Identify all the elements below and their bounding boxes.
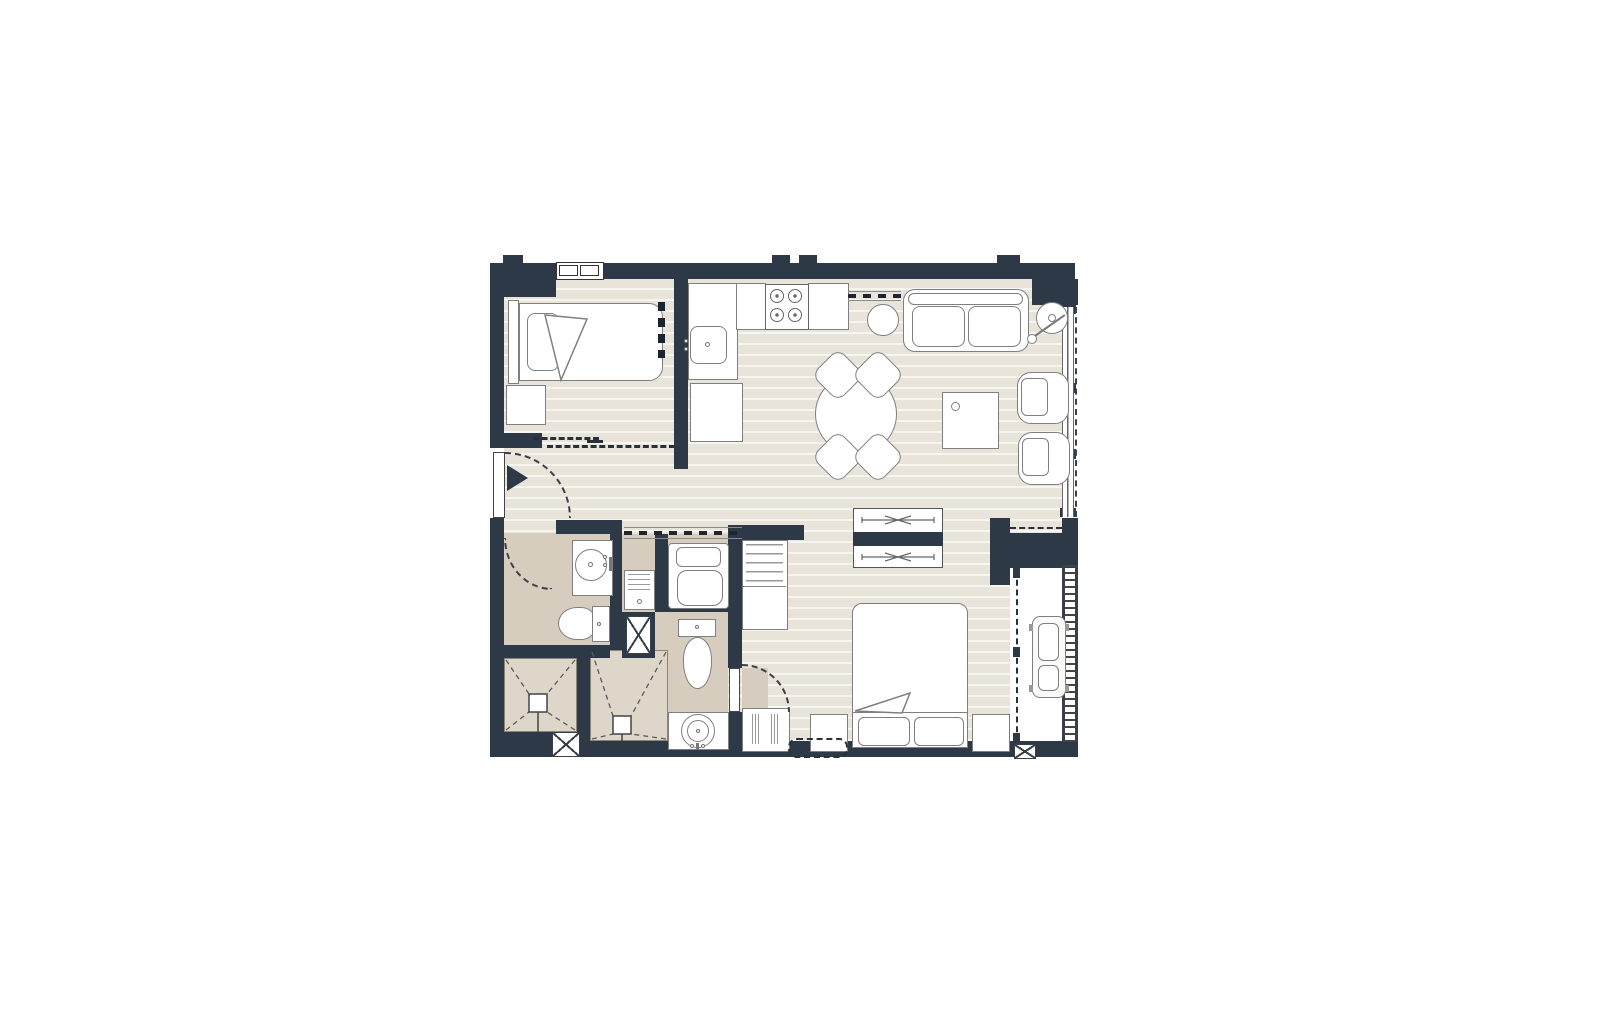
sofa-back (908, 293, 1023, 305)
wall-fridge-west (728, 525, 742, 668)
bed1-blanket-fold (852, 688, 914, 715)
basket-dot (637, 599, 642, 604)
wall-pilaster (799, 255, 817, 263)
ac-foot (1065, 685, 1069, 692)
laundry-sliding-track-dashed (624, 527, 742, 539)
shower-b (590, 650, 668, 741)
overhead-cabinet-dashed (848, 291, 901, 301)
balcony-hinge (1013, 733, 1020, 743)
bath1-faucet-icon (603, 555, 607, 559)
hanging-rail (859, 551, 937, 563)
wall-bath1-north (556, 520, 610, 534)
armchair-seat (1021, 378, 1048, 416)
wall-unit-dashed (788, 738, 848, 758)
wall-bath2-east-lower (728, 712, 742, 757)
coffee-table (942, 392, 999, 449)
sofa (903, 289, 1029, 352)
ac-foot (1065, 624, 1069, 631)
bath2-toilet-button (695, 625, 699, 629)
bath1-toilet-tank (592, 606, 610, 642)
sofa-cushion (968, 306, 1021, 347)
bath1-toilet-button (597, 622, 601, 626)
ac-condenser-unit (1032, 616, 1066, 698)
bath2-faucet-icon (690, 744, 694, 748)
wall-left-lower (490, 518, 504, 757)
wall-balcony-column (990, 518, 1010, 585)
ac-foot (1029, 685, 1033, 692)
balcony-boundary-dashed (1010, 527, 1062, 529)
balcony-edge-dashed (1075, 307, 1077, 517)
armchair (1018, 432, 1070, 485)
wall-balcony-top (1010, 533, 1062, 568)
bath1-toilet-bowl (558, 607, 596, 640)
bath2-drain-icon (696, 729, 700, 733)
duct-shaft-icon (552, 732, 580, 757)
burner-icon (788, 308, 802, 322)
sink-faucet-icon (684, 347, 688, 351)
dresser (742, 708, 790, 752)
dresser-line (771, 714, 772, 744)
wall-top-right-block (1032, 279, 1078, 305)
kitchen-counter (736, 283, 766, 330)
dresser-line (777, 714, 778, 744)
wall-pilaster (997, 255, 1020, 263)
duct-shaft-icon (626, 616, 651, 654)
coffee-table-handle (951, 402, 960, 411)
washer-drum (677, 570, 723, 606)
balcony-hinge (1013, 568, 1020, 578)
floor-plan (487, 255, 1078, 757)
wall-pilaster (772, 255, 790, 263)
wall-left-upper (490, 263, 504, 448)
wall-fridge-north (742, 525, 804, 540)
burner-icon (770, 308, 784, 322)
side-stool (867, 304, 899, 336)
entry-door-leaf (493, 452, 505, 518)
sink-drain-icon (705, 342, 710, 347)
ac-fan-section (1038, 623, 1059, 661)
refrigerator (742, 540, 788, 630)
sofa-cushion (912, 306, 965, 347)
dresser-line (752, 714, 753, 744)
window-sash (580, 265, 599, 276)
fridge-divider (743, 586, 786, 587)
floor-lamp-joint (1048, 314, 1056, 322)
wall-bedroom-kitchen (674, 279, 688, 469)
balcony-hinge (1013, 647, 1020, 657)
hanging-rail (859, 514, 937, 526)
cooktop (765, 284, 809, 330)
bed2-blanket-fold (537, 305, 592, 385)
bed2-headboard (508, 300, 519, 384)
bed1-pillow (914, 717, 964, 746)
kitchen-island (690, 383, 743, 442)
ac-fan-section (1038, 665, 1059, 691)
armchair-seat (1022, 438, 1049, 476)
laundry-basket (624, 570, 655, 610)
bed1-pillow (858, 717, 910, 746)
burner-icon (770, 289, 784, 303)
floor-lamp-base (1027, 334, 1037, 344)
basket-lines (628, 574, 650, 594)
entry-direction-arrow (507, 465, 528, 491)
bath2-faucet-icon (696, 743, 699, 750)
bed2-nightstand (506, 385, 546, 425)
dresser-line (755, 714, 756, 744)
ac-foot (1029, 624, 1033, 631)
bath2-door-leaf (729, 668, 740, 712)
bath1-drain-icon (588, 562, 593, 567)
washing-machine (668, 543, 729, 609)
bath1-faucet-icon (603, 563, 607, 567)
wardrobe-divider (853, 532, 943, 546)
dresser-line (758, 714, 759, 744)
bedroom2-sliding-door-dashed (547, 445, 675, 448)
burner-icon (788, 289, 802, 303)
bedroom2-door-jog (587, 440, 603, 443)
fridge-shelves (746, 544, 783, 584)
kitchen-counter (808, 283, 849, 330)
armchair (1017, 372, 1069, 424)
dresser-line (774, 714, 775, 744)
wall-right-block (1062, 518, 1078, 568)
bath2-faucet-icon (701, 744, 705, 748)
wall-pilaster (503, 255, 523, 263)
window-sash (559, 265, 578, 276)
shower-a (504, 658, 577, 732)
sink-faucet-icon (684, 339, 688, 343)
washer-lid (676, 547, 721, 567)
bed1-nightstand (972, 714, 1010, 752)
bed2-wardrobe-dashed (658, 302, 665, 358)
bath1-faucet-icon (609, 557, 612, 571)
wall-left-stub (504, 433, 542, 448)
duct-shaft-icon (1014, 744, 1036, 759)
bath2-toilet-bowl (683, 637, 712, 689)
